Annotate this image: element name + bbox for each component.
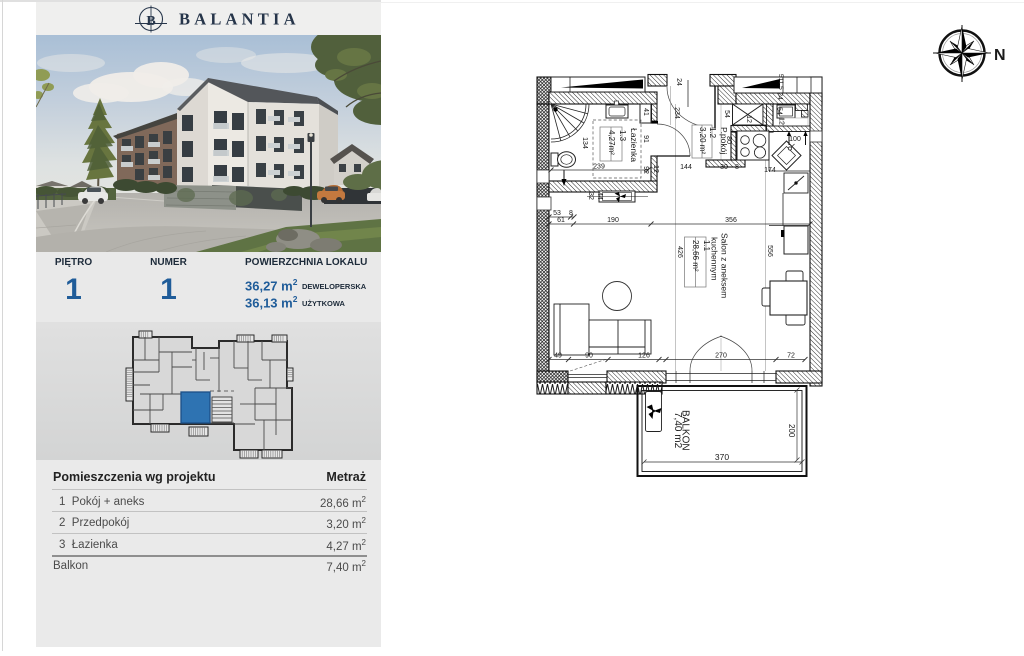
svg-text:90: 90 (585, 353, 593, 360)
svg-text:3,20 m²: 3,20 m² (698, 127, 707, 154)
svg-text:1.3: 1.3 (618, 130, 627, 142)
svg-text:511.5: 511.5 (777, 74, 784, 90)
svg-text:24: 24 (675, 78, 682, 86)
svg-text:54: 54 (723, 110, 730, 118)
svg-text:BALANTIA: BALANTIA (179, 10, 300, 29)
svg-text:49: 49 (554, 353, 562, 360)
svg-text:4,27m²: 4,27m² (607, 130, 616, 155)
svg-text:8: 8 (569, 210, 573, 217)
svg-text:356: 356 (725, 217, 737, 224)
svg-text:234: 234 (673, 107, 680, 119)
svg-text:30: 30 (720, 164, 728, 171)
svg-text:174: 174 (764, 167, 776, 174)
svg-text:100: 100 (789, 136, 801, 143)
svg-text:12: 12 (652, 165, 659, 173)
svg-text:426: 426 (676, 246, 683, 258)
svg-text:28,66 m²: 28,66 m² (691, 240, 700, 272)
svg-text:239: 239 (593, 164, 605, 171)
svg-text:B: B (146, 14, 155, 29)
svg-text:134: 134 (581, 137, 588, 149)
svg-text:270: 270 (715, 353, 727, 360)
svg-text:61: 61 (557, 217, 565, 224)
svg-text:200: 200 (787, 424, 796, 438)
svg-text:12: 12 (778, 117, 785, 125)
svg-text:8: 8 (735, 164, 739, 171)
svg-text:144: 144 (680, 164, 692, 171)
svg-text:1.2: 1.2 (708, 127, 717, 139)
svg-text:41: 41 (642, 108, 649, 116)
svg-text:91: 91 (642, 135, 649, 143)
svg-text:92: 92 (642, 166, 649, 174)
svg-text:24: 24 (776, 92, 783, 100)
svg-text:N: N (994, 47, 1006, 64)
svg-text:Salon z aneksem: Salon z aneksem (720, 233, 730, 298)
svg-text:Łazienka: Łazienka (629, 128, 639, 162)
svg-text:54: 54 (776, 107, 783, 115)
svg-text:44: 44 (596, 192, 603, 200)
svg-text:556: 556 (766, 245, 773, 257)
svg-text:80: 80 (725, 136, 732, 144)
svg-text:370: 370 (715, 452, 729, 462)
svg-text:72: 72 (787, 353, 795, 360)
svg-text:32: 32 (587, 192, 594, 200)
svg-text:53: 53 (553, 210, 561, 217)
svg-text:190: 190 (607, 217, 619, 224)
svg-text:kuchennym: kuchennym (710, 237, 720, 280)
svg-text:126: 126 (638, 353, 650, 360)
svg-text:7,40 m2: 7,40 m2 (672, 412, 683, 449)
svg-text:12: 12 (745, 115, 752, 123)
